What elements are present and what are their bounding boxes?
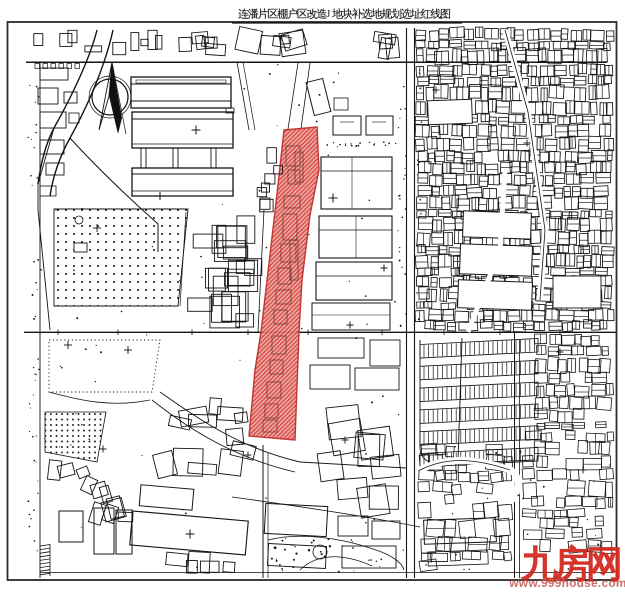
svg-text:J: J bbox=[326, 9, 330, 20]
svg-text:www.999house.com: www.999house.com bbox=[508, 576, 625, 590]
